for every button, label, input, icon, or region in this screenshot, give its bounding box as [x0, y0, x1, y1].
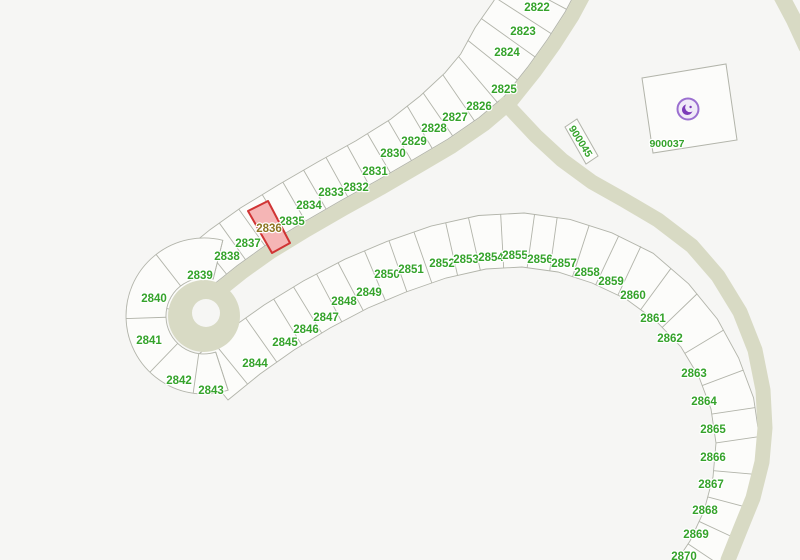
lot-label-2866[interactable]: 2866	[700, 452, 726, 464]
lot-label-2867[interactable]: 2867	[698, 479, 724, 491]
lot-label-2869[interactable]: 2869	[683, 529, 709, 541]
lot-label-2841[interactable]: 2841	[136, 335, 162, 347]
lot-label-2830[interactable]: 2830	[380, 148, 406, 160]
lot-label-2838[interactable]: 2838	[214, 251, 240, 263]
lot-label-2845[interactable]: 2845	[272, 337, 298, 349]
lot-label-2855[interactable]: 2855	[502, 250, 528, 262]
lot-label-2868[interactable]: 2868	[692, 505, 718, 517]
lot-label-2834[interactable]: 2834	[296, 200, 322, 212]
lot-label-2831[interactable]: 2831	[362, 166, 388, 178]
mosque-icon[interactable]	[678, 99, 699, 120]
lot-label-2850[interactable]: 2850	[374, 269, 400, 281]
lot-label-2849[interactable]: 2849	[356, 287, 382, 299]
lot-label-2865[interactable]: 2865	[700, 424, 726, 436]
lot-label-2851[interactable]: 2851	[398, 264, 424, 276]
lot-label-2824[interactable]: 2824	[494, 47, 520, 59]
lot-label-2861[interactable]: 2861	[640, 313, 666, 325]
lot-label-2852[interactable]: 2852	[429, 258, 455, 270]
lot-label-2856[interactable]: 2856	[527, 254, 553, 266]
lot-label-2835[interactable]: 2835	[279, 216, 305, 228]
lot-label-2862[interactable]: 2862	[657, 333, 683, 345]
lot-label-2839[interactable]: 2839	[187, 270, 213, 282]
lot-label-2832[interactable]: 2832	[343, 182, 369, 194]
lot-label-2858[interactable]: 2858	[574, 267, 600, 279]
lot-label-2840[interactable]: 2840	[141, 293, 167, 305]
lot-label-2842[interactable]: 2842	[166, 375, 192, 387]
parcel-map[interactable]: 2822282328242825282628272828282928302831…	[0, 0, 800, 560]
lot-label-2843[interactable]: 2843	[198, 385, 224, 397]
lot-label-2822[interactable]: 2822	[524, 2, 550, 14]
lot-label-2837[interactable]: 2837	[235, 238, 261, 250]
lot-label-2847[interactable]: 2847	[313, 312, 339, 324]
cul-de-sac-island	[192, 299, 220, 327]
lot-label-2836[interactable]: 2836	[256, 223, 282, 235]
lot-label-2859[interactable]: 2859	[598, 276, 624, 288]
lot-label-2829[interactable]: 2829	[401, 136, 427, 148]
lot-label-2854[interactable]: 2854	[478, 252, 504, 264]
lot-label-2823[interactable]: 2823	[510, 26, 536, 38]
lot-label-2857[interactable]: 2857	[551, 258, 577, 270]
lot-label-2846[interactable]: 2846	[293, 324, 319, 336]
lot-label-2864[interactable]: 2864	[691, 396, 717, 408]
lot-label-2853[interactable]: 2853	[453, 254, 479, 266]
lot-label-2848[interactable]: 2848	[331, 296, 357, 308]
lot-label-2863[interactable]: 2863	[681, 368, 707, 380]
lot-label-2825[interactable]: 2825	[491, 84, 517, 96]
lot-label-2833[interactable]: 2833	[318, 187, 344, 199]
lot-label-2870[interactable]: 2870	[671, 551, 697, 560]
lot-label-2826[interactable]: 2826	[466, 101, 492, 113]
lot-label-2860[interactable]: 2860	[620, 290, 646, 302]
lot-label-2844[interactable]: 2844	[242, 358, 268, 370]
lot-label-900037[interactable]: 900037	[649, 138, 684, 150]
lot-label-2828[interactable]: 2828	[421, 123, 447, 135]
parcel-map-svg[interactable]: 2822282328242825282628272828282928302831…	[0, 0, 800, 560]
